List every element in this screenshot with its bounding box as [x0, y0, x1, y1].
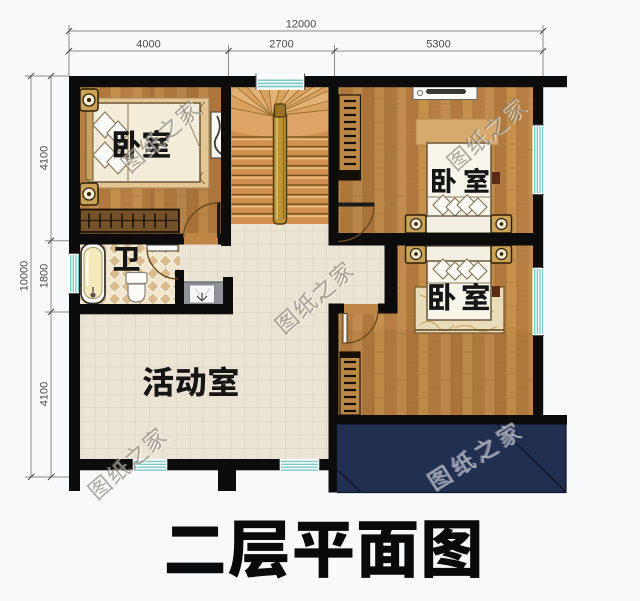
svg-text:12000: 12000 — [286, 19, 317, 31]
svg-text:4000: 4000 — [136, 39, 160, 51]
svg-text:1800: 1800 — [39, 264, 51, 288]
svg-text:2700: 2700 — [269, 39, 293, 51]
svg-text:4100: 4100 — [39, 382, 51, 406]
svg-text:4100: 4100 — [39, 146, 51, 170]
svg-text:5300: 5300 — [426, 39, 450, 51]
svg-text:10000: 10000 — [19, 261, 31, 292]
